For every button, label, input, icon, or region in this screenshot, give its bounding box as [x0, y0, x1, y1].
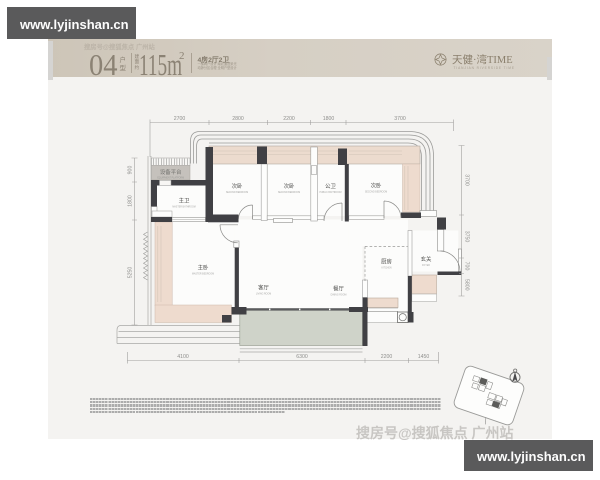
svg-text:公卫: 公卫 [325, 183, 336, 190]
svg-text:2700: 2700 [174, 116, 186, 122]
svg-text:MASTER BEDROOM: MASTER BEDROOM [192, 273, 214, 276]
svg-text:FOYER: FOYER [422, 265, 430, 267]
svg-text:6300: 6300 [296, 354, 308, 360]
svg-text:2200: 2200 [381, 354, 393, 360]
svg-text:LIVING ROOM: LIVING ROOM [256, 294, 271, 296]
svg-text:3700: 3700 [394, 116, 406, 122]
svg-text:900: 900 [128, 166, 134, 175]
svg-text:厨房: 厨房 [381, 258, 392, 266]
svg-text:PUBLIC BATHROOM: PUBLIC BATHROOM [319, 191, 341, 194]
svg-text:2800: 2800 [232, 116, 244, 122]
svg-text:次卧: 次卧 [232, 182, 243, 190]
svg-text:1450: 1450 [418, 354, 430, 360]
svg-text:次卧: 次卧 [284, 182, 295, 190]
svg-text:SECOND BEDROOM: SECOND BEDROOM [226, 192, 248, 194]
svg-text:700: 700 [464, 262, 470, 271]
svg-text:玄关: 玄关 [421, 255, 432, 263]
svg-text:餐厅: 餐厅 [333, 285, 344, 293]
svg-text:EQUIPMENT PLATFORM: EQUIPMENT PLATFORM [157, 177, 184, 180]
svg-text:SECOND BEDROOM: SECOND BEDROOM [365, 192, 387, 194]
svg-text:DINING ROOM: DINING ROOM [331, 295, 347, 297]
svg-text:主卫: 主卫 [179, 197, 190, 205]
svg-text:3700: 3700 [464, 174, 470, 186]
svg-text:客厅: 客厅 [258, 284, 269, 292]
svg-text:SECOND BEDROOM: SECOND BEDROOM [278, 192, 300, 194]
svg-text:5250: 5250 [128, 267, 134, 279]
svg-text:4100: 4100 [177, 354, 189, 360]
svg-text:设备平台: 设备平台 [160, 168, 182, 176]
svg-text:1800: 1800 [323, 116, 335, 122]
svg-text:1800: 1800 [128, 195, 134, 207]
svg-text:KITCHEN: KITCHEN [381, 268, 391, 270]
svg-text:3750: 3750 [464, 231, 470, 243]
svg-text:MASTER BATHROOM: MASTER BATHROOM [172, 206, 195, 209]
svg-text:次卧: 次卧 [371, 182, 382, 190]
svg-text:2200: 2200 [283, 116, 295, 122]
svg-text:5800: 5800 [464, 279, 470, 291]
svg-text:主卧: 主卧 [198, 264, 209, 272]
